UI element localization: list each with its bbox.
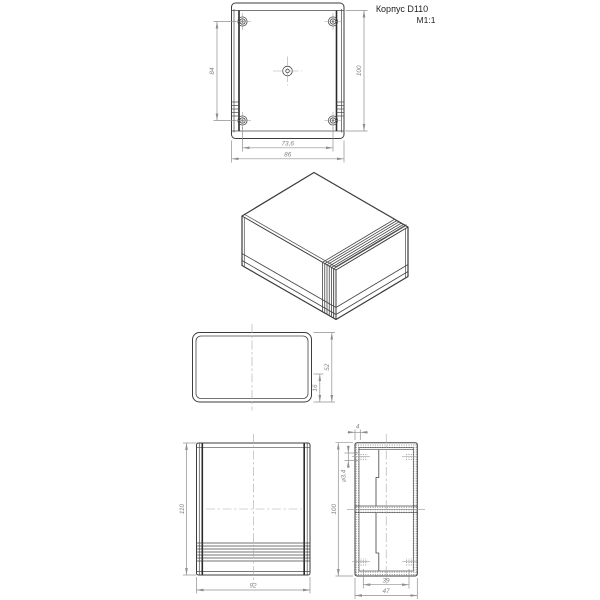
top-view: 84 100 73,6 86 xyxy=(209,3,368,163)
dim-screw-spacing-h: 73,6 xyxy=(281,140,294,147)
end-view: 52 16 xyxy=(193,324,336,411)
front-view: 110 92 xyxy=(179,434,310,594)
top-view-outline xyxy=(232,3,345,139)
dim-section-height: 100 xyxy=(331,504,338,515)
isometric-view xyxy=(242,173,408,320)
section-view: 4 100 ⌀3,4 39 47 xyxy=(331,424,425,600)
drawing-svg: Корпус D110 М1:1 xyxy=(0,0,600,600)
dim-boss-hole-dia: ⌀3,4 xyxy=(341,469,348,482)
dim-outer-depth: 47 xyxy=(382,588,390,595)
drawing-scale: М1:1 xyxy=(417,15,436,25)
dim-lip-height: 16 xyxy=(312,384,319,392)
title-block: Корпус D110 М1:1 xyxy=(376,4,436,25)
drawing-title: Корпус D110 xyxy=(376,4,428,14)
dim-width: 92 xyxy=(249,583,257,590)
dim-height: 110 xyxy=(179,503,186,514)
dim-body-width: 86 xyxy=(284,151,292,158)
end-view-dimensions: 52 16 xyxy=(312,333,335,403)
dim-body-height: 100 xyxy=(356,65,363,76)
dim-inner-width: 39 xyxy=(382,577,390,584)
dim-wall-thickness: 4 xyxy=(356,424,360,431)
dim-depth: 52 xyxy=(324,363,331,371)
technical-drawing-sheet: Корпус D110 М1:1 xyxy=(0,0,600,600)
dim-screw-spacing-v: 84 xyxy=(209,67,216,75)
